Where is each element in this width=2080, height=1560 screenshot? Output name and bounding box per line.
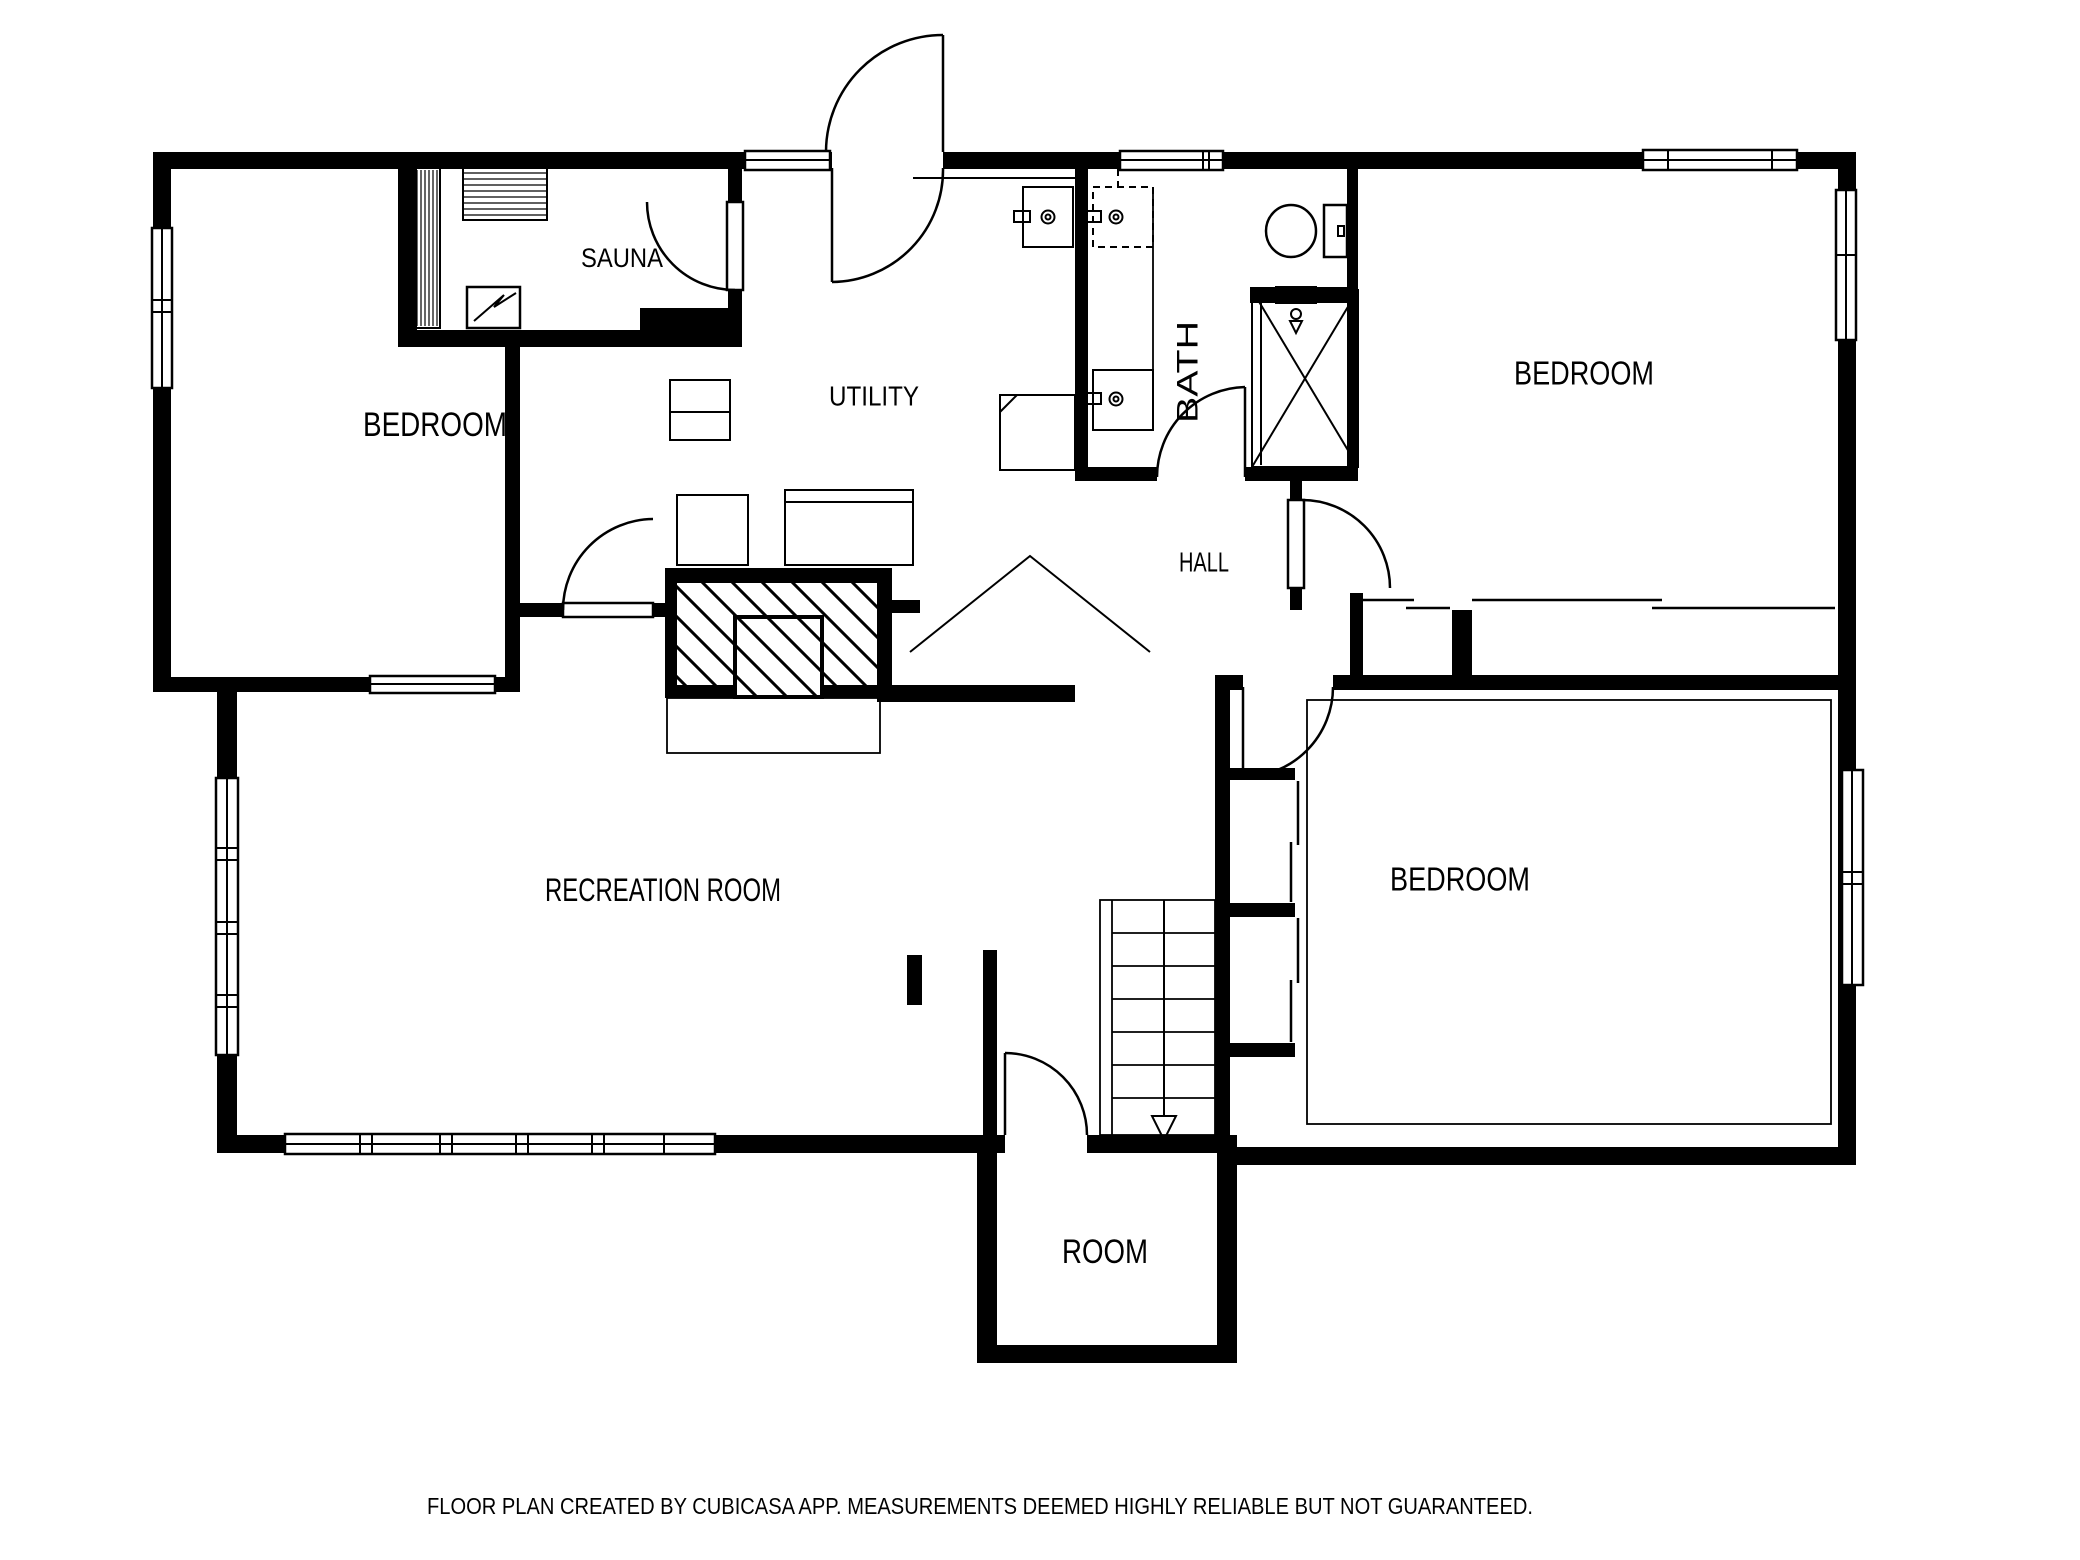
wall-east-of-chimney bbox=[877, 600, 920, 613]
wall-sauna-east-upper bbox=[728, 152, 742, 202]
utility-sink-icon bbox=[1014, 187, 1073, 247]
window-right-bedroomtr bbox=[1836, 190, 1856, 340]
shower-icon bbox=[1252, 287, 1358, 467]
wall-bath-west bbox=[1075, 152, 1088, 481]
wall-sauna-se-block bbox=[640, 308, 742, 347]
window-right-bedroombr bbox=[1842, 770, 1863, 985]
sliding-door-closet-right bbox=[1472, 600, 1835, 608]
door-bedroom-top-left bbox=[563, 519, 653, 617]
wall-sauna-west bbox=[398, 152, 417, 347]
wall-nook-west bbox=[520, 603, 563, 617]
wall-corridor-south bbox=[877, 685, 1075, 702]
cabinet-icon bbox=[670, 380, 730, 440]
wall-sauna-south bbox=[398, 330, 647, 347]
bath-fixtures bbox=[1085, 169, 1358, 467]
wall-sauna-east-lower bbox=[728, 290, 742, 315]
appliance-icon bbox=[677, 495, 748, 565]
sink-icon bbox=[1085, 169, 1153, 247]
sauna-bench-top-icon bbox=[463, 168, 547, 220]
water-heater-icon bbox=[1000, 395, 1075, 470]
window-left-bedroomtl bbox=[152, 228, 172, 388]
door-bedroom-bottom-right bbox=[1243, 673, 1333, 777]
window-top-utility bbox=[745, 151, 830, 170]
window-top-bath bbox=[1120, 151, 1223, 170]
wall-room-south bbox=[977, 1345, 1237, 1363]
bedroombr-inner-outline bbox=[1307, 700, 1831, 1124]
sliding-door-closetcol-lower bbox=[1291, 918, 1298, 1042]
wall-chimney-west bbox=[665, 568, 677, 698]
room-label-room: ROOM bbox=[1062, 1233, 1148, 1271]
counter-icon bbox=[785, 490, 913, 565]
sliding-door-closetcol-upper bbox=[1291, 781, 1298, 902]
footer-disclaimer: FLOOR PLAN CREATED BY CUBICASA APP. MEAS… bbox=[427, 1493, 1533, 1519]
window-bottom-recroom bbox=[285, 1134, 715, 1154]
floorplan-page: BEDROOM SAUNA UTILITY BATH BEDROOM HALL … bbox=[0, 0, 2080, 1560]
wall-stub-recroom bbox=[907, 955, 922, 1005]
sauna-fixtures bbox=[405, 168, 547, 328]
wall-room-west bbox=[977, 1150, 997, 1363]
chimney bbox=[667, 583, 880, 753]
door-bedroom-top-right bbox=[1288, 500, 1390, 588]
room-label-bedroom-top-right: BEDROOM bbox=[1514, 355, 1654, 392]
wall-stairwell-east bbox=[1215, 675, 1230, 1150]
room-label-hall: HALL bbox=[1179, 547, 1229, 578]
sink-icon bbox=[1085, 370, 1153, 430]
sliding-door-closet-left bbox=[1363, 600, 1450, 608]
sauna-stove-icon bbox=[467, 287, 520, 328]
room-labels: BEDROOM SAUNA UTILITY BATH BEDROOM HALL … bbox=[363, 243, 1654, 1271]
room-label-bath: BATH bbox=[1172, 321, 1205, 423]
hearth-pad bbox=[667, 698, 880, 753]
room-label-sauna: SAUNA bbox=[581, 243, 663, 273]
wardrobe-rail-icon bbox=[910, 556, 1150, 652]
walls bbox=[153, 152, 1856, 1363]
toilet-icon bbox=[1266, 205, 1347, 257]
room-label-bedroom-top-left: BEDROOM bbox=[363, 406, 507, 444]
window-left-recroom bbox=[216, 778, 238, 1055]
wall-corridor-west bbox=[983, 950, 997, 1135]
door-room bbox=[1005, 1053, 1087, 1153]
wall-bath-east bbox=[1347, 152, 1358, 481]
wall-room-east bbox=[1217, 1150, 1237, 1363]
wall-closetcol-stub2 bbox=[1230, 903, 1295, 917]
window-bedroomtl-recroom bbox=[370, 676, 495, 693]
wall-bath-south-east bbox=[1245, 467, 1358, 481]
wall-chimney-north bbox=[665, 568, 892, 583]
wall-chimney-east bbox=[877, 568, 892, 698]
wall-bedroomtr-west-lower bbox=[1290, 588, 1302, 610]
flue-hatch bbox=[737, 619, 820, 695]
wall-bedroomtr-west-upper bbox=[1290, 481, 1302, 500]
room-label-recreation-room: RECREATION ROOM bbox=[545, 872, 781, 908]
room-label-utility: UTILITY bbox=[829, 381, 919, 412]
window-top-bedroomtr bbox=[1643, 150, 1797, 170]
room-label-bedroom-bottom-right: BEDROOM bbox=[1390, 861, 1530, 898]
floorplan-drawing: BEDROOM SAUNA UTILITY BATH BEDROOM HALL … bbox=[0, 0, 2080, 1560]
wall-bedroombr-south bbox=[1237, 1147, 1856, 1165]
staircase bbox=[1100, 900, 1215, 1140]
wall-closetcol-stub3 bbox=[1230, 1043, 1295, 1057]
wall-bedroombr-north-east bbox=[1333, 675, 1856, 690]
wall-bedroomtl-east bbox=[505, 347, 520, 692]
wall-bath-south-west bbox=[1075, 467, 1157, 481]
